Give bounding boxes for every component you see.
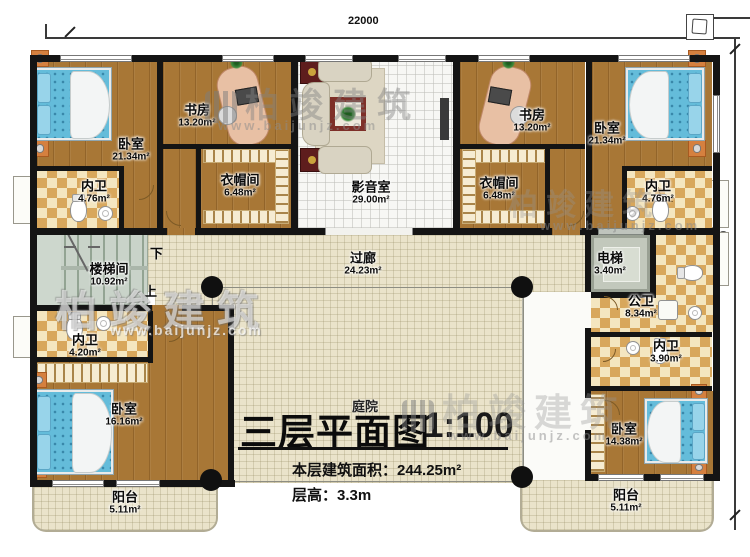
room-label-bedroom-bottom-right: 卧室 14.38m²: [605, 422, 642, 447]
column: [511, 276, 533, 298]
wall-bath-top-left: [119, 166, 124, 228]
right-dimension-line: [734, 38, 736, 530]
room-label-study-left: 书房 13.20m²: [178, 103, 215, 128]
wall-leftwing-east: [228, 305, 234, 487]
window: [222, 55, 274, 62]
wall-study-left-south: [163, 144, 291, 149]
pillow: [37, 73, 51, 103]
wall-interior: [453, 55, 460, 228]
elevator-door: [598, 228, 644, 235]
cloakroom-left-rack: [275, 149, 289, 224]
wall-bath-bottom-right-south: [590, 386, 712, 391]
sink: [688, 306, 702, 320]
pillow: [692, 403, 705, 431]
room-label-bath-top-right: 内卫 4.76m²: [642, 179, 674, 204]
room-label-bath-bottom-right: 内卫 3.90m²: [650, 339, 682, 364]
wall-elevator-east: [650, 235, 656, 297]
room-label-stairwell: 楼梯间 10.92m²: [89, 262, 128, 287]
room-label-bath-top-left: 内卫 4.76m²: [78, 179, 110, 204]
stair-down-label: 下: [150, 243, 163, 262]
room-label-cloakroom-left: 衣帽间 6.48m²: [220, 173, 259, 198]
chair: [218, 106, 237, 125]
pillow: [37, 105, 51, 135]
window: [60, 55, 132, 62]
door-opening: [552, 228, 580, 235]
sink: [96, 316, 111, 331]
wall-interior: [157, 55, 163, 228]
room-label-media-room: 影音室 29.00m²: [351, 180, 390, 205]
room-label-elevator: 电梯 3.40m²: [594, 251, 626, 276]
wall-exterior-right-lower: [713, 235, 720, 480]
window: [478, 55, 530, 62]
room-label-corridor: 过廊 24.23m²: [344, 251, 381, 276]
wall-publicbath-south: [590, 332, 712, 337]
column: [201, 276, 223, 298]
floor-area-text: 本层建筑面积：244.25m²: [292, 459, 461, 480]
wall-bath-top-right: [622, 166, 712, 171]
wall-study-right-south: [460, 144, 585, 149]
room-label-bedroom-bottom-left: 卧室 16.16m²: [105, 402, 142, 427]
floor-plan-page: 22000 15960: [0, 0, 750, 557]
door-opening: [585, 398, 591, 430]
door-opening: [152, 305, 182, 311]
window: [116, 480, 160, 487]
blanket: [647, 401, 681, 463]
plan-scale: 1:100: [424, 406, 514, 446]
door-opening: [585, 292, 591, 328]
title-underline: [238, 447, 508, 450]
pillow: [692, 432, 705, 460]
wall-bath-top-left: [37, 166, 123, 171]
sofa: [302, 82, 330, 146]
sink: [625, 206, 640, 221]
top-dimension-tick-left: [64, 26, 75, 37]
wall-leftwing-north: [30, 305, 233, 311]
wall-interior: [291, 55, 298, 228]
roof-flue-symbol-inner: [691, 18, 707, 34]
shower-tray: [658, 300, 678, 320]
stair-landing: [37, 233, 61, 305]
tv-screen: [440, 98, 449, 140]
stair-up-label: 上: [144, 281, 157, 300]
hallway-floor: [522, 292, 586, 480]
bedroom-bottom-left-wardrobe: [35, 363, 148, 383]
window: [598, 474, 644, 481]
room-label-bath-bottom-left: 内卫 4.20m²: [69, 333, 101, 358]
room-label-bedroom-top-left: 卧室 21.34m²: [112, 137, 149, 162]
room-label-balcony-left: 阳台 5.11m²: [109, 490, 140, 515]
room-label-study-right: 书房 13.20m²: [513, 108, 550, 133]
media-room-opening: [325, 228, 413, 235]
room-label-cloakroom-right: 衣帽间 6.48m²: [479, 176, 518, 201]
room-label-bedroom-top-right: 卧室 21.34m²: [588, 121, 625, 146]
wall-bath-top-right: [622, 171, 627, 228]
toilet: [681, 265, 703, 281]
window: [660, 474, 704, 481]
stair-break-tick: [88, 246, 100, 248]
wall-cloakroom-right: [545, 146, 550, 228]
stair-break-tick: [64, 246, 76, 248]
sink: [98, 206, 113, 221]
sink: [626, 341, 640, 355]
nightstand: [688, 140, 706, 157]
bedroom-bottom-right-wardrobe: [589, 394, 605, 472]
window: [618, 55, 690, 62]
wall-bath-bottom-left: [148, 305, 153, 363]
pillow: [688, 73, 702, 103]
door-opening: [167, 228, 195, 235]
top-dimension-line: [45, 37, 740, 39]
column: [200, 469, 222, 491]
window: [52, 480, 104, 487]
cloakroom-right-rack: [462, 149, 476, 224]
pillow: [37, 434, 51, 470]
wall-exterior-left-upper: [30, 55, 37, 235]
wall-exterior-top: [30, 55, 720, 62]
room-label-balcony-right: 阳台 5.11m²: [610, 488, 641, 513]
pillow: [688, 105, 702, 135]
window: [398, 55, 446, 62]
window: [305, 55, 353, 62]
top-dimension-label: 22000: [348, 15, 379, 27]
floor-height-text: 层高：3.3m: [292, 484, 371, 505]
window: [713, 95, 720, 153]
plant: [340, 106, 356, 122]
pillow: [37, 396, 51, 432]
top-dimension-ext-left: [45, 24, 47, 38]
wall-cloakroom-left: [196, 146, 201, 228]
blanket: [629, 71, 669, 139]
wall-rightwing-west: [585, 228, 591, 480]
column: [511, 466, 533, 488]
room-label-public-bath: 公卫 8.34m²: [625, 294, 657, 319]
sofa: [318, 146, 372, 174]
